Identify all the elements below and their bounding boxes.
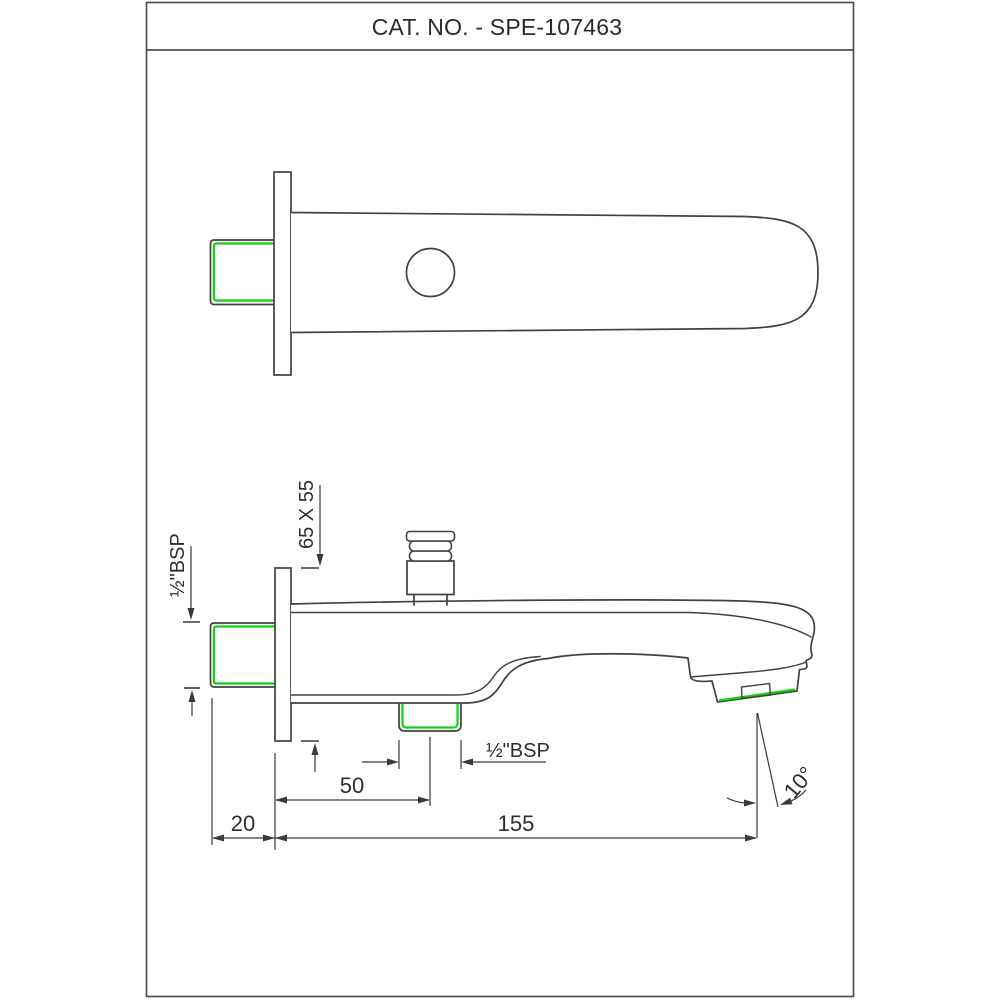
- knob-body: [407, 561, 454, 595]
- wall-projection-value: 20: [231, 811, 255, 836]
- outlet-thread-label: ½"BSP: [486, 740, 550, 762]
- outlet-offset-value: 50: [340, 773, 364, 798]
- catalog-number: CAT. NO. - SPE-107463: [372, 14, 622, 40]
- spout-body-fill-top: [291, 213, 818, 333]
- sheet-frame: CAT. NO. - SPE-107463: [147, 3, 854, 997]
- technical-drawing: CAT. NO. - SPE-107463: [0, 0, 1000, 1000]
- flange-size-label: 65 X 55: [296, 480, 318, 549]
- drawing-sheet: CAT. NO. - SPE-107463: [0, 0, 1000, 1000]
- wall-flange-top-view: [274, 172, 291, 375]
- knob-ridge-upper: [410, 541, 452, 551]
- knob-ridge-lower: [410, 551, 452, 561]
- knob-cap: [407, 532, 455, 542]
- wall-flange-side-view: [275, 568, 291, 741]
- inlet-thread-label: ½"BSP: [167, 533, 189, 597]
- total-length-value: 155: [498, 811, 535, 836]
- frame-border: [147, 3, 854, 997]
- diverter-knob: [407, 532, 455, 606]
